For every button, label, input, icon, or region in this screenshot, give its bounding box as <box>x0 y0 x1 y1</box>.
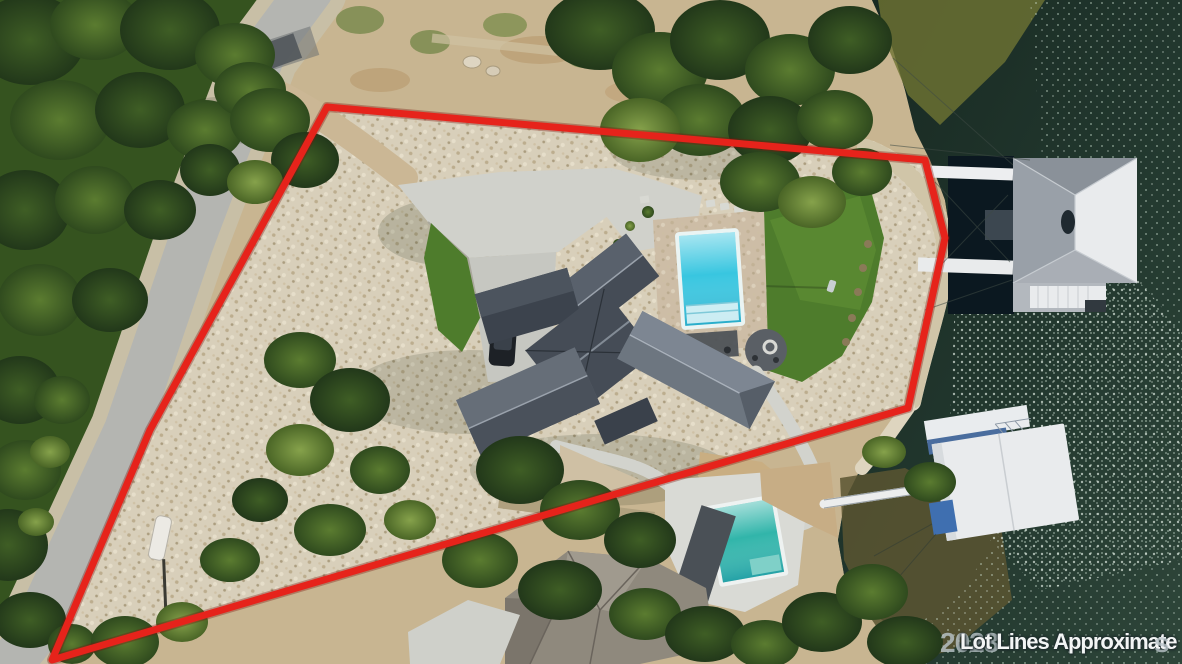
swimming-pool <box>675 228 746 330</box>
aerial-photo-canvas <box>0 0 1182 664</box>
boulders <box>463 56 500 76</box>
dock-lower-extension <box>1013 283 1106 312</box>
dock-roof <box>1013 158 1137 283</box>
fire-pit-patio <box>745 329 787 371</box>
dock-cupola <box>1061 210 1075 234</box>
aerial-photo: 2023 Lot Lines Approximate s <box>0 0 1182 664</box>
neighbor-driveway <box>408 600 520 664</box>
dock-storage-box <box>929 500 958 535</box>
